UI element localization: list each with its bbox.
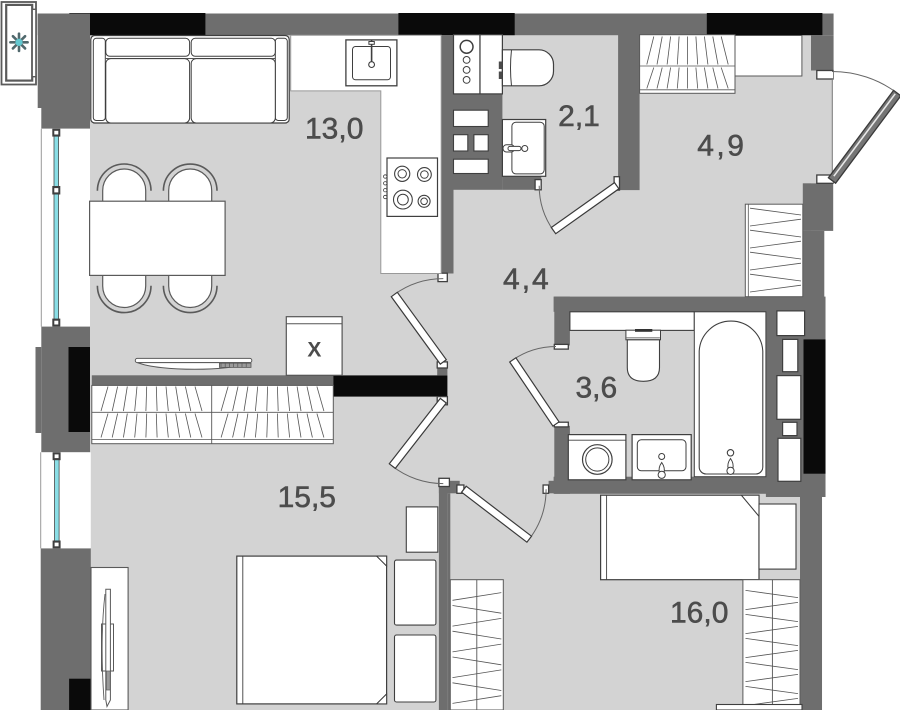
svg-text:3,6: 3,6 bbox=[575, 372, 617, 405]
svg-text:X: X bbox=[307, 339, 321, 362]
svg-text:2,1: 2,1 bbox=[558, 100, 600, 133]
svg-text:4,4: 4,4 bbox=[503, 263, 551, 296]
svg-text:13,0: 13,0 bbox=[305, 113, 363, 146]
svg-text:15,5: 15,5 bbox=[278, 481, 336, 514]
svg-text:4,9: 4,9 bbox=[697, 130, 746, 163]
svg-text:16,0: 16,0 bbox=[670, 597, 728, 630]
